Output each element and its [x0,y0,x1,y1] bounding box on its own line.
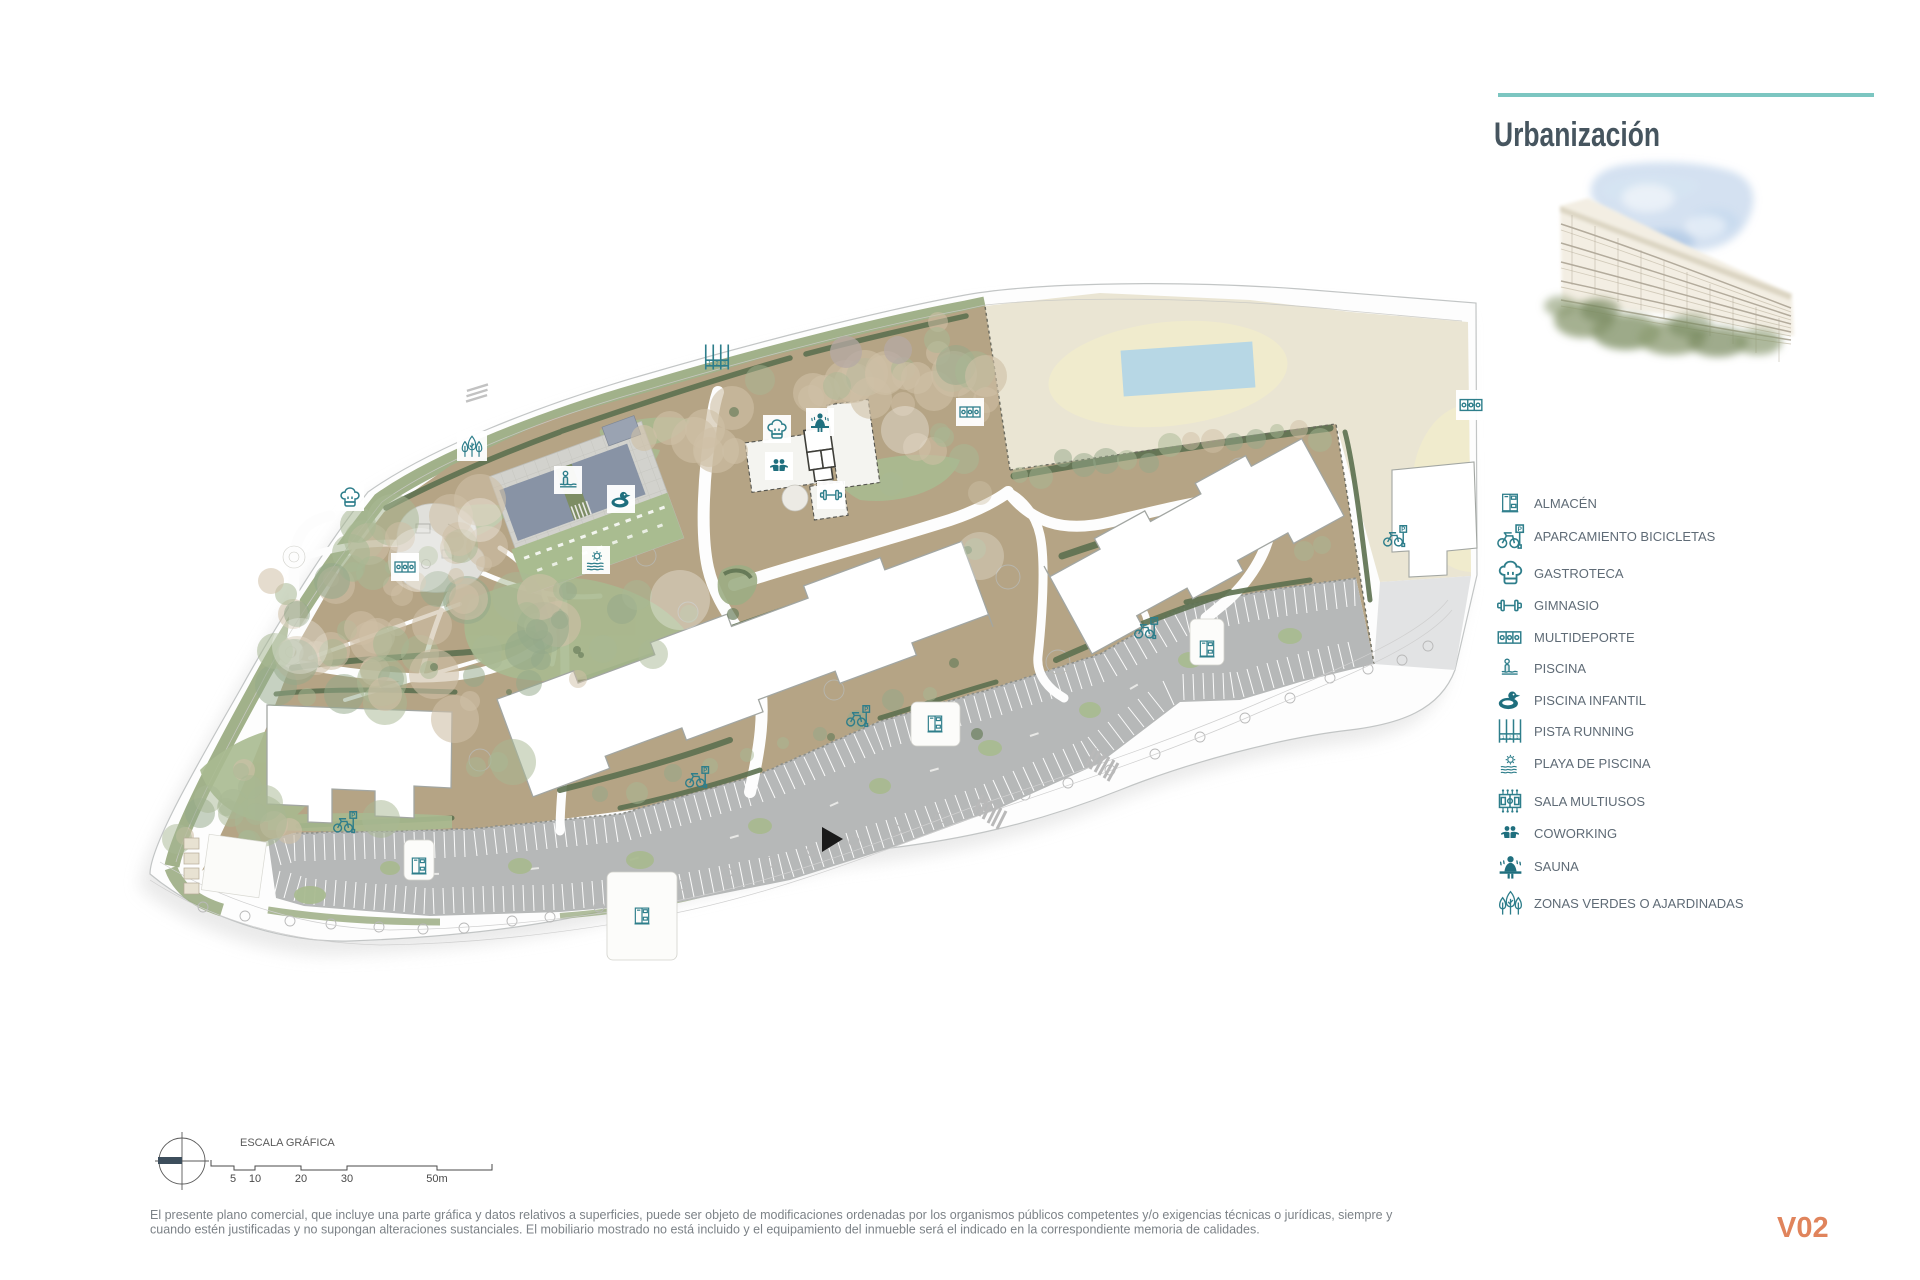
svg-text:ESCALA GRÁFICA: ESCALA GRÁFICA [240,1136,335,1149]
svg-text:GASTROTECA: GASTROTECA [1534,566,1624,581]
svg-text:V02: V02 [1777,1212,1829,1244]
svg-text:PLAYA DE PISCINA: PLAYA DE PISCINA [1534,756,1651,771]
svg-text:10: 10 [249,1173,261,1185]
svg-text:PISCINA INFANTIL: PISCINA INFANTIL [1534,693,1646,708]
svg-text:PISTA RUNNING: PISTA RUNNING [1534,724,1634,739]
svg-text:20: 20 [295,1173,307,1185]
svg-text:cuando estén justificadas y no: cuando estén justificadas y no supongan … [150,1223,1260,1237]
svg-text:SALA MULTIUSOS: SALA MULTIUSOS [1534,794,1645,809]
svg-text:ZONAS VERDES O AJARDINADAS: ZONAS VERDES O AJARDINADAS [1534,896,1744,911]
svg-text:APARCAMIENTO BICICLETAS: APARCAMIENTO BICICLETAS [1534,529,1716,544]
svg-text:Urbanización: Urbanización [1494,116,1660,154]
svg-text:COWORKING: COWORKING [1534,826,1617,841]
svg-text:MULTIDEPORTE: MULTIDEPORTE [1534,630,1635,645]
svg-text:SAUNA: SAUNA [1534,859,1579,874]
svg-text:GIMNASIO: GIMNASIO [1534,598,1599,613]
svg-text:El presente plano comercial, q: El presente plano comercial, que incluye… [150,1208,1393,1222]
svg-text:ALMACÉN: ALMACÉN [1534,496,1597,511]
svg-text:5: 5 [230,1173,236,1185]
svg-text:50m: 50m [426,1173,447,1185]
svg-text:30: 30 [341,1173,353,1185]
svg-text:PISCINA: PISCINA [1534,661,1586,676]
